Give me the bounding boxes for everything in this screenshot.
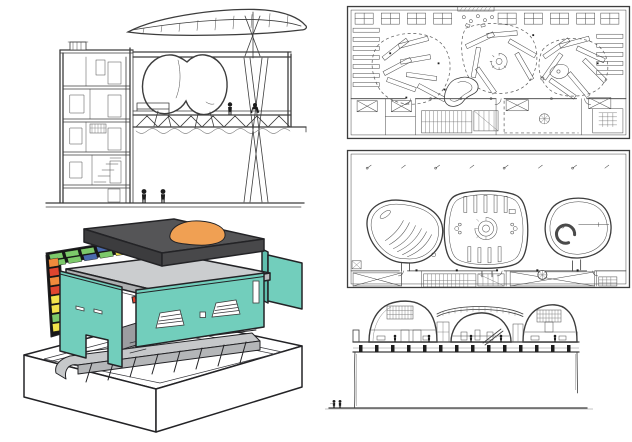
service-strip (351, 98, 626, 135)
pod-auditorium (367, 200, 443, 271)
dome-right (523, 305, 577, 342)
floor-plan-upper (345, 4, 632, 142)
pod-gallery (545, 198, 611, 271)
canopy-roof (128, 9, 306, 58)
desk-row (355, 7, 619, 25)
exploded-axonometric-model (10, 213, 310, 442)
building-section-sketch (40, 2, 310, 215)
column-marks (366, 165, 609, 169)
ground-figures (330, 400, 341, 408)
spiral-stair (490, 53, 507, 69)
ground-line (46, 203, 304, 207)
orange-dome (170, 221, 225, 245)
section-tower (60, 42, 133, 203)
fanned-shelves (382, 31, 607, 102)
people-silhouettes (142, 102, 260, 203)
floor-plan-main (345, 148, 632, 291)
side-shelves (353, 28, 623, 86)
podium-wall (355, 352, 578, 408)
podium-section-drawing (325, 292, 632, 442)
architecture-drawings-board (0, 0, 632, 442)
lattice-column (244, 58, 268, 202)
pod-rotunda (444, 191, 528, 277)
dome-left (369, 301, 437, 342)
roof-slab (84, 219, 264, 266)
dome-centre (437, 307, 523, 343)
